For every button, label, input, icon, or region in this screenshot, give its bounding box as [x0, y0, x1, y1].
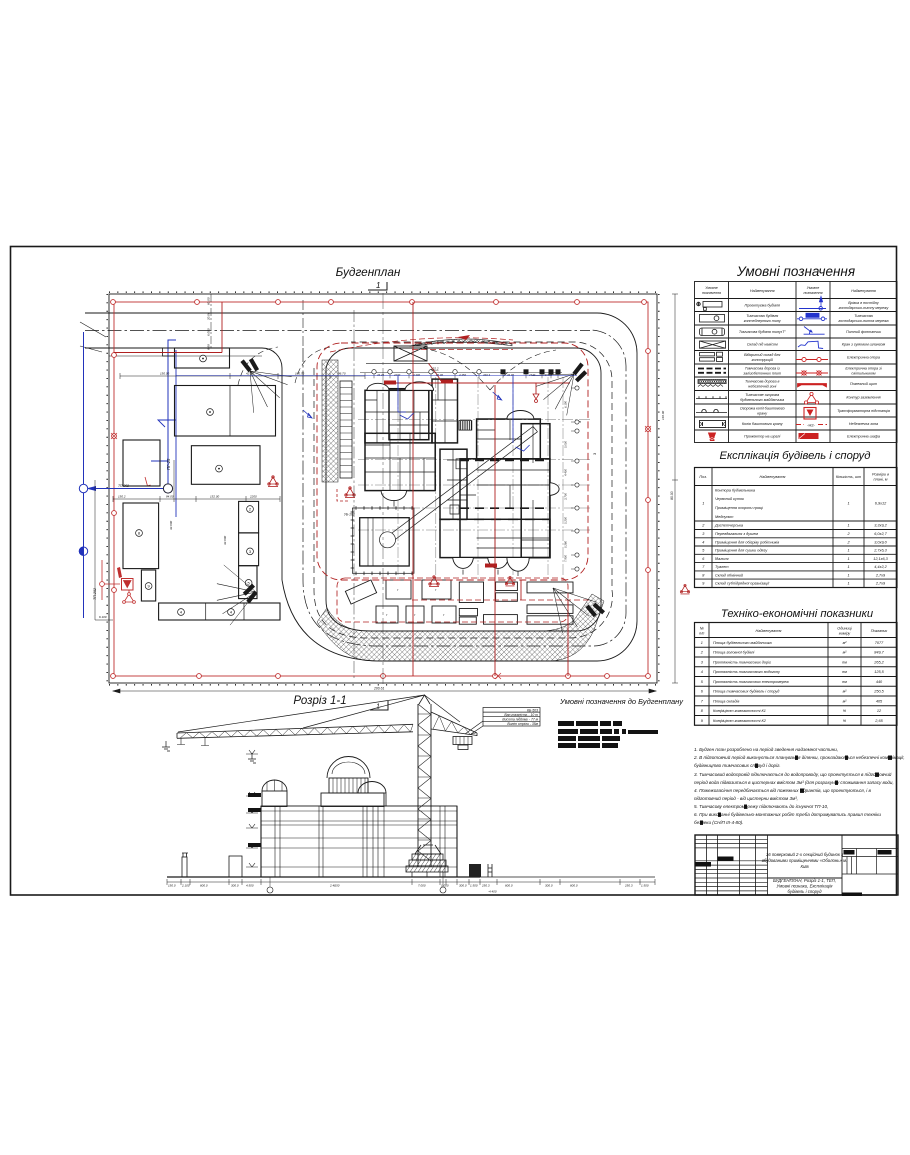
- svg-text:1.500: 1.500: [641, 884, 649, 888]
- svg-text:Електрична опора: Електрична опора: [847, 356, 880, 360]
- svg-text:150.0: 150.0: [168, 884, 176, 888]
- svg-text:1: 1: [702, 502, 704, 506]
- svg-text:265,2: 265,2: [873, 660, 884, 664]
- svg-text:Умовні позначення: Умовні позначення: [736, 264, 855, 279]
- svg-text:будівель і споруд: будівель і споруд: [788, 889, 823, 894]
- svg-text:вбудованими приміщеннями «Обол: вбудованими приміщеннями «Оболонь» м.: [762, 858, 848, 863]
- svg-text:Найменування: Найменування: [750, 289, 775, 293]
- svg-text:Приміщення охорони праці: Приміщення охорони праці: [715, 506, 763, 510]
- svg-text:Площа складів: Площа складів: [713, 699, 739, 703]
- svg-text:6.99: 6.99: [207, 344, 211, 350]
- svg-text:Пожежний щит: Пожежний щит: [850, 382, 877, 386]
- svg-text:Висота підйому - 77 м: Висота підйому - 77 м: [502, 718, 538, 722]
- svg-text:№: №: [700, 627, 704, 631]
- svg-text:3. Тимчасовий водопровід підкл: 3. Тимчасовий водопровід підключається д…: [694, 771, 892, 777]
- svg-text:4.400: 4.400: [564, 469, 568, 476]
- svg-text:Експлікація будівель і спору: Експлікація будівель і споруд: [720, 450, 871, 462]
- svg-text:405: 405: [876, 699, 883, 703]
- svg-text:контейнерного типу: контейнерного типу: [744, 319, 782, 323]
- svg-text:Тимчасове огорожа: Тимчасове огорожа: [745, 393, 779, 397]
- svg-text:Трансформаторна підстанція: Трансформаторна підстанція: [837, 409, 890, 413]
- svg-text:250.3: 250.3: [624, 884, 633, 888]
- svg-text:Техніко-економічні показники: Техніко-економічні показники: [721, 608, 873, 620]
- svg-text:440: 440: [876, 680, 883, 684]
- svg-text:12,1х6,3: 12,1х6,3: [873, 557, 888, 561]
- svg-text:Проектуєма будівля: Проектуєма будівля: [745, 303, 780, 307]
- svg-text:плані, м: плані, м: [874, 478, 888, 482]
- svg-text:849,7: 849,7: [874, 651, 884, 655]
- svg-text:1: 1: [847, 573, 849, 577]
- svg-text:Протяжність тимчасових електро: Протяжність тимчасових електромереж: [713, 680, 789, 684]
- svg-text:ПГ-25: ПГ-25: [166, 458, 171, 470]
- svg-text:4: 4: [702, 540, 704, 544]
- svg-text:-Н2-: -Н2-: [807, 422, 815, 427]
- svg-text:Контур заземлення: Контур заземлення: [846, 396, 880, 400]
- svg-text:Ван-тажність - 10 т: Ван-тажність - 10 т: [504, 713, 538, 717]
- svg-text:4,4х2,2: 4,4х2,2: [874, 565, 887, 569]
- svg-text:150.2: 150.2: [118, 495, 126, 499]
- svg-text:крану: крану: [757, 411, 768, 415]
- svg-text:4: 4: [701, 670, 703, 674]
- svg-text:1: 1: [847, 549, 849, 553]
- svg-text:0.280: 0.280: [564, 541, 568, 548]
- svg-text:позначення: позначення: [702, 291, 721, 295]
- svg-text:2,7х6,3: 2,7х6,3: [873, 549, 887, 553]
- svg-text:600.0: 600.0: [570, 884, 578, 888]
- svg-text:6,9х12: 6,9х12: [875, 502, 887, 506]
- svg-text:господарсько-питну мережу: господарсько-питну мережу: [839, 306, 890, 310]
- svg-text:3.700: 3.700: [564, 493, 568, 500]
- svg-text:1. Будген план розроблено на п: 1. Будген план розроблено на період звед…: [694, 747, 838, 752]
- svg-text:Червоний куток: Червоний куток: [715, 497, 744, 501]
- svg-text:6. При виконанні будівельно-мо: 6. При виконанні будівельно-монтажних ро…: [694, 812, 881, 817]
- svg-text:Туалет: Туалет: [715, 565, 729, 569]
- svg-text:будівництво тимчасових споруд: будівництво тимчасових споруд і доріг.: [694, 763, 781, 768]
- svg-text:Протяжність тимчасового водого: Протяжність тимчасового водогону: [713, 670, 781, 674]
- svg-text:42.00: 42.00: [246, 372, 254, 376]
- svg-text:250.3: 250.3: [481, 884, 490, 888]
- svg-text:6,0х2,7: 6,0х2,7: [874, 532, 887, 536]
- svg-text:Небезпечна зона: Небезпечна зона: [849, 422, 878, 426]
- svg-text:Тимчасова будівля: Тимчасова будівля: [746, 314, 778, 318]
- svg-text:Найменування: Найменування: [760, 475, 786, 479]
- svg-text:2,7х9: 2,7х9: [875, 573, 886, 577]
- svg-text:84.00: 84.00: [166, 495, 174, 499]
- svg-text:7.900: 7.900: [564, 555, 568, 562]
- svg-text:Електрична шафа: Електрична шафа: [847, 435, 880, 439]
- svg-text:4. Пожежогасіння передбачаєтьс: 4. Пожежогасіння передбачається від поже…: [694, 788, 872, 793]
- svg-text:132.2: 132.2: [431, 367, 439, 371]
- svg-text:1: 1: [847, 557, 849, 561]
- svg-text:Склад під навісом: Склад під навісом: [747, 343, 778, 347]
- svg-text:7.000: 7.000: [418, 884, 426, 888]
- svg-text:господарсько-питна мережа: господарсько-питна мережа: [838, 319, 888, 323]
- svg-text:пм: пм: [842, 680, 847, 684]
- svg-text:300.0: 300.0: [459, 884, 467, 888]
- svg-text:КБ-503: КБ-503: [527, 708, 538, 712]
- svg-text:Тимчасова будівля типу▪Т”: Тимчасова будівля типу▪Т”: [739, 330, 787, 334]
- svg-text:-4.400: -4.400: [488, 890, 497, 894]
- svg-text:Розміри в: Розміри в: [872, 473, 889, 477]
- svg-text:виміру: виміру: [839, 632, 852, 636]
- svg-text:6.000: 6.000: [207, 328, 211, 336]
- svg-text:7077: 7077: [875, 641, 884, 645]
- svg-text:1: 1: [847, 565, 849, 569]
- svg-text:32.600: 32.600: [169, 520, 173, 530]
- svg-text:УБ-162: УБ-162: [344, 513, 355, 517]
- svg-text:п/п: п/п: [699, 632, 705, 636]
- svg-text:4.500: 4.500: [246, 884, 254, 888]
- svg-text:16 поверховий 2-х секційний бу: 16 поверховий 2-х секційний будинок з: [766, 852, 843, 857]
- svg-text:2. В підготовчий період викону: 2. В підготовчий період виконується план…: [693, 754, 905, 760]
- svg-text:160.70: 160.70: [295, 372, 305, 376]
- svg-text:Електрична опора зі: Електрична опора зі: [845, 366, 881, 370]
- svg-text:Одиниці: Одиниці: [837, 627, 852, 631]
- svg-text:Площа головної будівлі: Площа головної будівлі: [713, 651, 755, 655]
- svg-text:Найменування: Найменування: [851, 289, 876, 293]
- svg-text:Умовне: Умовне: [705, 286, 718, 290]
- svg-text:Приміщення для сушки одягу: Приміщення для сушки одягу: [715, 549, 768, 553]
- svg-text:Диспетчерська: Диспетчерська: [714, 524, 743, 528]
- svg-text:Розріз 1-1: Розріз 1-1: [293, 695, 346, 707]
- svg-text:Медпункт: Медпункт: [715, 515, 733, 519]
- svg-text:Коефіцієнт компактності К1: Коефіцієнт компактності К1: [713, 709, 766, 713]
- svg-text:5.200: 5.200: [564, 517, 568, 524]
- svg-text:Показник: Показник: [871, 629, 888, 633]
- svg-text:Колія баштового крану: Колія баштового крану: [742, 422, 784, 426]
- svg-text:152.00: 152.00: [210, 495, 220, 499]
- svg-text:3,3х9,2: 3,3х9,2: [874, 524, 887, 528]
- svg-text:Перевдягальня з душем: Перевдягальня з душем: [715, 532, 758, 536]
- svg-text:2,7х9: 2,7х9: [875, 582, 886, 586]
- svg-text:2200: 2200: [249, 495, 257, 499]
- svg-text:Їдальня: Їдальня: [715, 557, 728, 561]
- svg-text:150.00: 150.00: [160, 372, 170, 376]
- svg-text:конструкцій: конструкцій: [752, 358, 773, 362]
- svg-text:1: 1: [847, 524, 849, 528]
- svg-text:Огорожа копії баштового: Огорожа копії баштового: [740, 406, 785, 410]
- svg-text:80.00: 80.00: [670, 491, 674, 500]
- svg-text:залізобетонних плит: залізобетонних плит: [742, 371, 781, 375]
- svg-text:60.00: 60.00: [207, 297, 211, 305]
- svg-text:Тимчасова дорога в: Тимчасова дорога в: [745, 380, 780, 384]
- svg-text:1.500: 1.500: [470, 884, 478, 888]
- svg-text:Найменування: Найменування: [756, 629, 782, 633]
- svg-text:6.190: 6.190: [564, 401, 568, 408]
- svg-text:1: 1: [847, 582, 849, 586]
- svg-text:2.100: 2.100: [181, 884, 190, 888]
- svg-text:1: 1: [701, 641, 703, 645]
- svg-text:Склад обмінний: Склад обмінний: [715, 573, 744, 577]
- svg-text:пм: пм: [842, 670, 847, 674]
- svg-text:Кількість, шт: Кількість, шт: [836, 475, 861, 479]
- svg-text:96.70: 96.70: [338, 372, 346, 376]
- svg-text:5. Тимчасову електромережу під: 5. Тимчасову електромережу підключають д…: [694, 804, 828, 809]
- svg-text:300.0: 300.0: [545, 884, 553, 888]
- svg-text:небезпечній зоні: небезпечній зоні: [748, 385, 776, 389]
- svg-text:140.00: 140.00: [661, 410, 665, 420]
- svg-text:600.0: 600.0: [200, 884, 208, 888]
- svg-text:6.100: 6.100: [99, 615, 107, 619]
- svg-text:Прожектор на щоглі: Прожектор на щоглі: [744, 435, 780, 439]
- svg-text:період вода підвозиться в цист: період вода підвозиться в цистернах вміс…: [694, 780, 894, 785]
- svg-text:Умовні познаки, Експлікація: Умовні познаки, Експлікація: [777, 884, 834, 889]
- svg-text:Приміщення для обігріву робітн: Приміщення для обігріву робітників: [715, 540, 779, 544]
- svg-text:Будгенплан: Будгенплан: [336, 265, 401, 279]
- svg-text:Протяжність тимчасових доріг: Протяжність тимчасових доріг: [713, 660, 771, 664]
- svg-text:Кран з гумовим шлангом: Кран з гумовим шлангом: [842, 343, 886, 347]
- svg-text:Умовне: Умовне: [807, 286, 820, 290]
- svg-text:Врізка в постійну: Врізка в постійну: [848, 301, 880, 305]
- svg-text:2.4Б50: 2.4Б50: [329, 884, 340, 888]
- svg-text:БУДГЕНПЛАН, Розріз 1-1, ТЕП,: БУДГЕНПЛАН, Розріз 1-1, ТЕП,: [773, 878, 836, 883]
- svg-text:2,65: 2,65: [874, 719, 883, 723]
- svg-text:світильником: світильником: [851, 371, 876, 375]
- svg-text:Умовні позначення до Будгенпл: Умовні позначення до Будгенплану: [559, 697, 684, 706]
- svg-text:600.0: 600.0: [505, 884, 513, 888]
- svg-text:Поз.: Поз.: [699, 475, 707, 479]
- svg-text:5.000: 5.000: [564, 441, 568, 448]
- svg-text:125,5: 125,5: [874, 670, 884, 674]
- svg-text:будівельного майданчика: будівельного майданчика: [740, 398, 784, 402]
- svg-text:підготовчий період - від цисте: підготовчий період - від цистерни вмісто…: [694, 795, 798, 801]
- svg-text:Тимчасова: Тимчасова: [854, 314, 872, 318]
- svg-text:1: 1: [376, 281, 380, 290]
- svg-text:Питний фонтанчик: Питний фонтанчик: [846, 330, 881, 334]
- svg-text:пм: пм: [842, 660, 847, 664]
- svg-text:20.00: 20.00: [207, 312, 211, 321]
- svg-text:250,5: 250,5: [873, 690, 884, 694]
- svg-text:300.0: 300.0: [231, 884, 239, 888]
- svg-text:Контора будівельника: Контора будівельника: [715, 488, 755, 492]
- svg-text:Виліт стріли - 35м: Виліт стріли - 35м: [507, 722, 538, 726]
- svg-text:Склад субпідрядної організації: Склад субпідрядної організації: [715, 582, 770, 586]
- svg-text:Київ: Київ: [800, 864, 809, 869]
- svg-text:1: 1: [847, 502, 849, 506]
- svg-text:позначення: позначення: [803, 291, 822, 295]
- svg-text:Площа тимчасових будівель і сп: Площа тимчасових будівель і споруд: [713, 690, 779, 694]
- svg-text:200.61: 200.61: [373, 687, 384, 691]
- svg-text:32.600: 32.600: [223, 535, 227, 545]
- svg-text:Площа будівельного майданчика: Площа будівельного майданчика: [713, 641, 772, 645]
- svg-text:Тимчасова дорога із: Тимчасова дорога із: [745, 366, 780, 370]
- svg-text:3,0х9,0: 3,0х9,0: [874, 540, 887, 544]
- svg-text:Коефіцієнт компактності К2: Коефіцієнт компактності К2: [713, 719, 767, 723]
- svg-text:Відкритий склад для: Відкритий склад для: [744, 353, 780, 357]
